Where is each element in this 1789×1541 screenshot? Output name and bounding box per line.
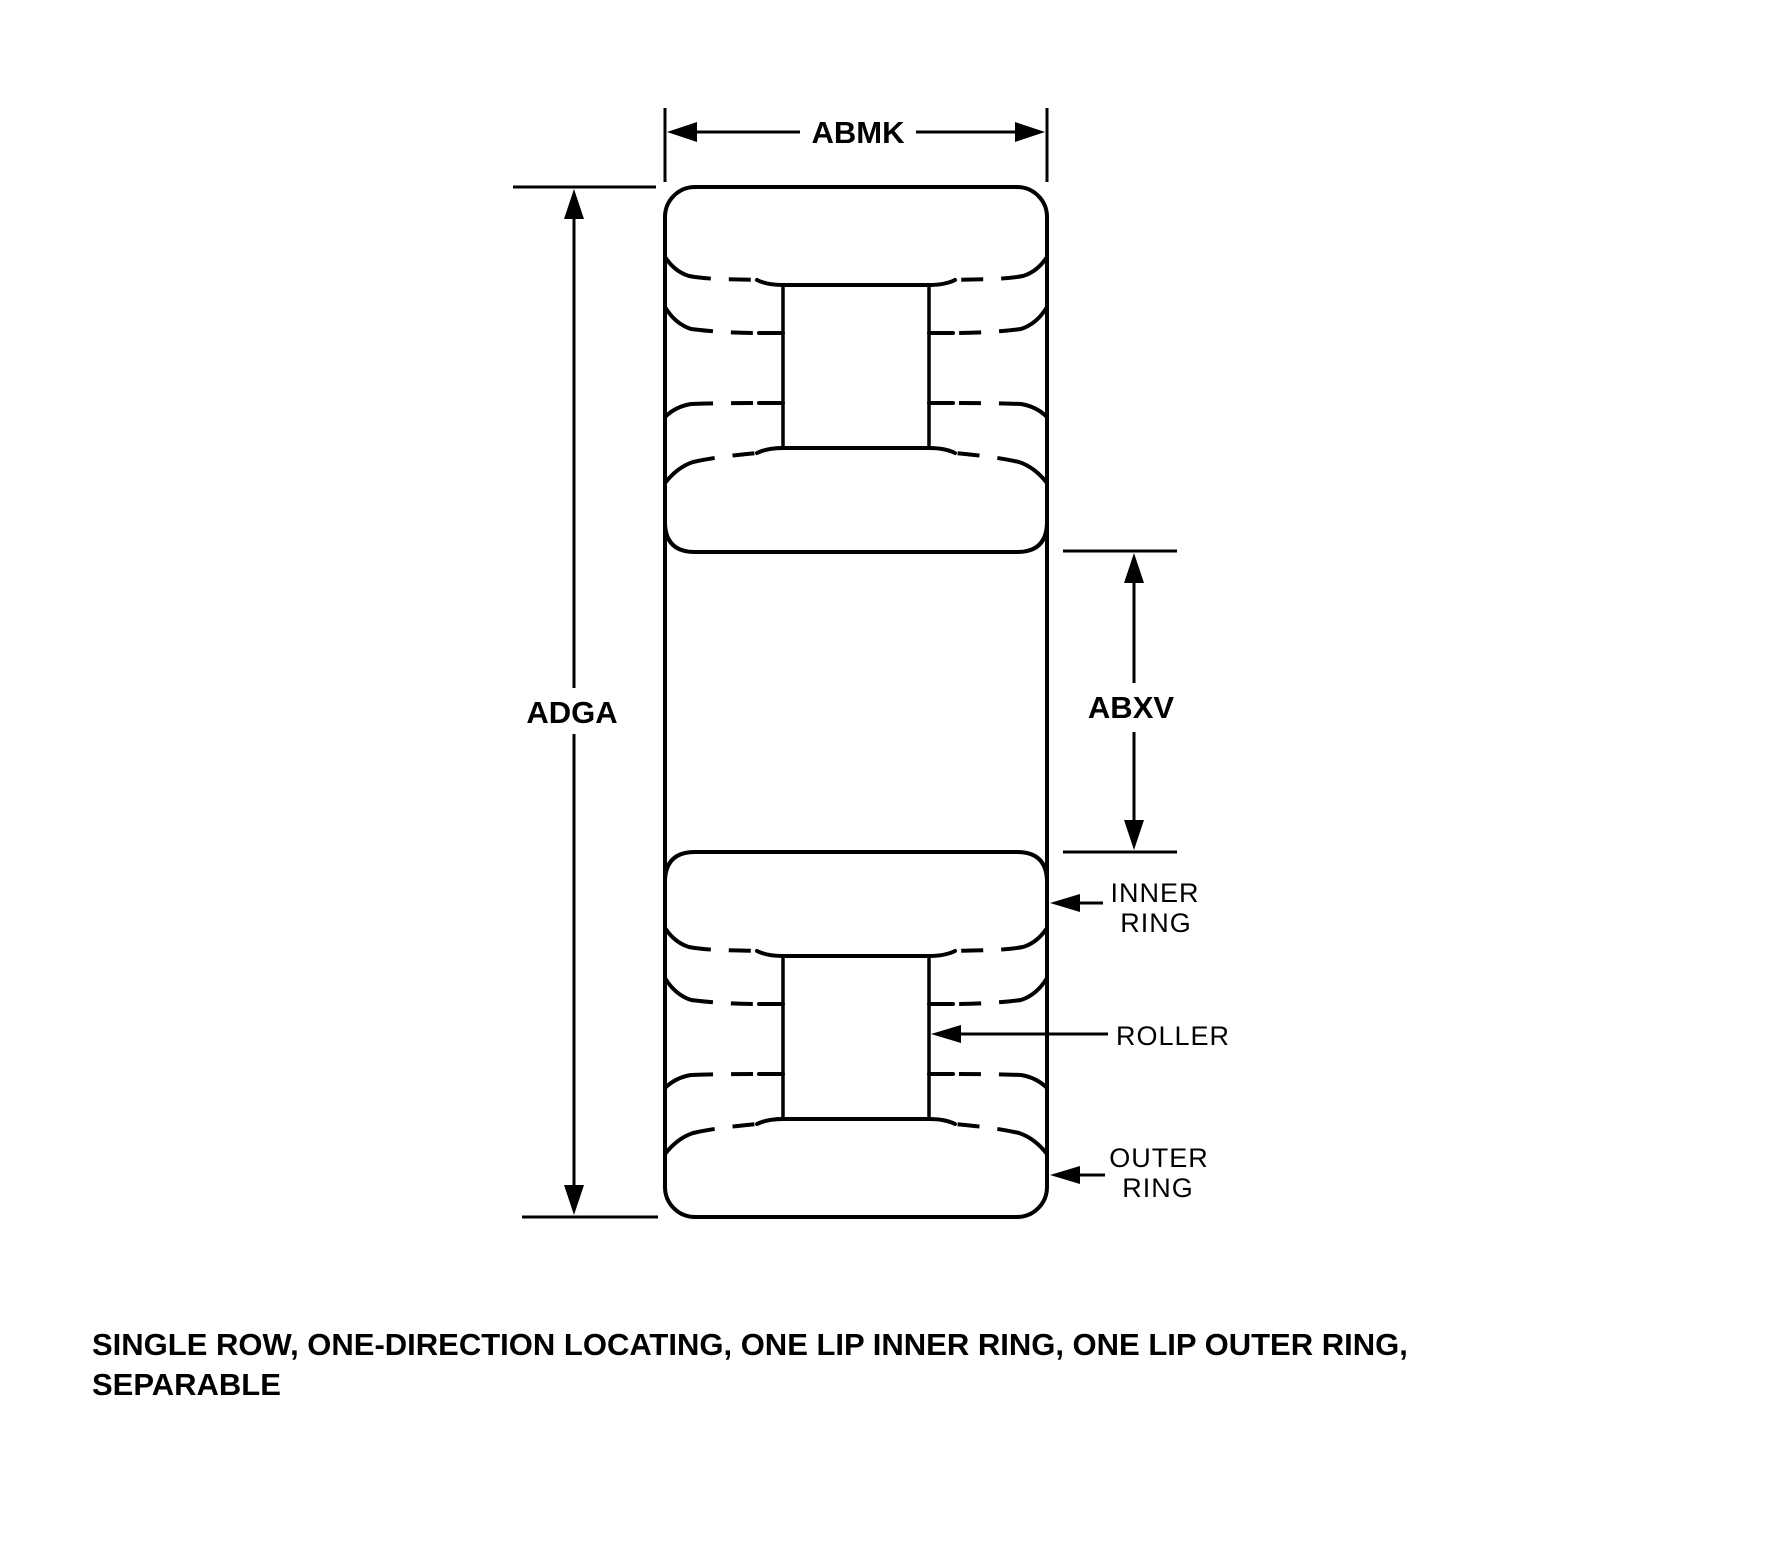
roller-callout: ROLLER bbox=[931, 1021, 1230, 1051]
lower-block-top-edge bbox=[665, 852, 1047, 882]
abxv-bottom-arrowhead-icon bbox=[1124, 820, 1144, 850]
bearing-envelope bbox=[665, 187, 1047, 1217]
outer-ring-arrowhead-icon bbox=[1050, 1166, 1080, 1184]
abmk-right-arrowhead-icon bbox=[1015, 122, 1045, 142]
upper-roller-set bbox=[665, 257, 1047, 483]
abmk-label: ABMK bbox=[812, 115, 906, 150]
abxv-dimension: ABXV bbox=[1063, 551, 1177, 852]
caption-line2: SEPARABLE bbox=[92, 1367, 281, 1402]
bearing-body bbox=[665, 187, 1047, 1217]
adga-label: ADGA bbox=[526, 695, 617, 730]
inner-ring-label-line1: INNER bbox=[1110, 878, 1199, 908]
adga-dimension: ADGA bbox=[513, 187, 658, 1217]
bearing-diagram: ABMK ADGA ABXV INNER RING bbox=[0, 0, 1789, 1541]
lower-roller-set bbox=[665, 928, 1047, 1154]
outer-ring-label-line2: RING bbox=[1122, 1173, 1194, 1203]
upper-block-bottom-edge bbox=[665, 522, 1047, 552]
adga-top-arrowhead-icon bbox=[564, 189, 584, 219]
caption-line1: SINGLE ROW, ONE-DIRECTION LOCATING, ONE … bbox=[92, 1327, 1408, 1362]
adga-bottom-arrowhead-icon bbox=[564, 1185, 584, 1215]
roller-arrowhead-icon bbox=[931, 1025, 961, 1043]
abmk-dimension: ABMK bbox=[665, 108, 1047, 182]
abxv-label: ABXV bbox=[1088, 690, 1174, 725]
inner-ring-label-line2: RING bbox=[1120, 908, 1192, 938]
caption: SINGLE ROW, ONE-DIRECTION LOCATING, ONE … bbox=[92, 1327, 1408, 1402]
outer-ring-label-line1: OUTER bbox=[1109, 1143, 1209, 1173]
inner-ring-callout: INNER RING bbox=[1050, 878, 1200, 938]
bearing-diagram-page: ABMK ADGA ABXV INNER RING bbox=[0, 0, 1789, 1541]
outer-ring-callout: OUTER RING bbox=[1050, 1143, 1209, 1203]
abxv-top-arrowhead-icon bbox=[1124, 553, 1144, 583]
abmk-left-arrowhead-icon bbox=[667, 122, 697, 142]
roller-label: ROLLER bbox=[1116, 1021, 1230, 1051]
inner-ring-arrowhead-icon bbox=[1050, 894, 1080, 912]
